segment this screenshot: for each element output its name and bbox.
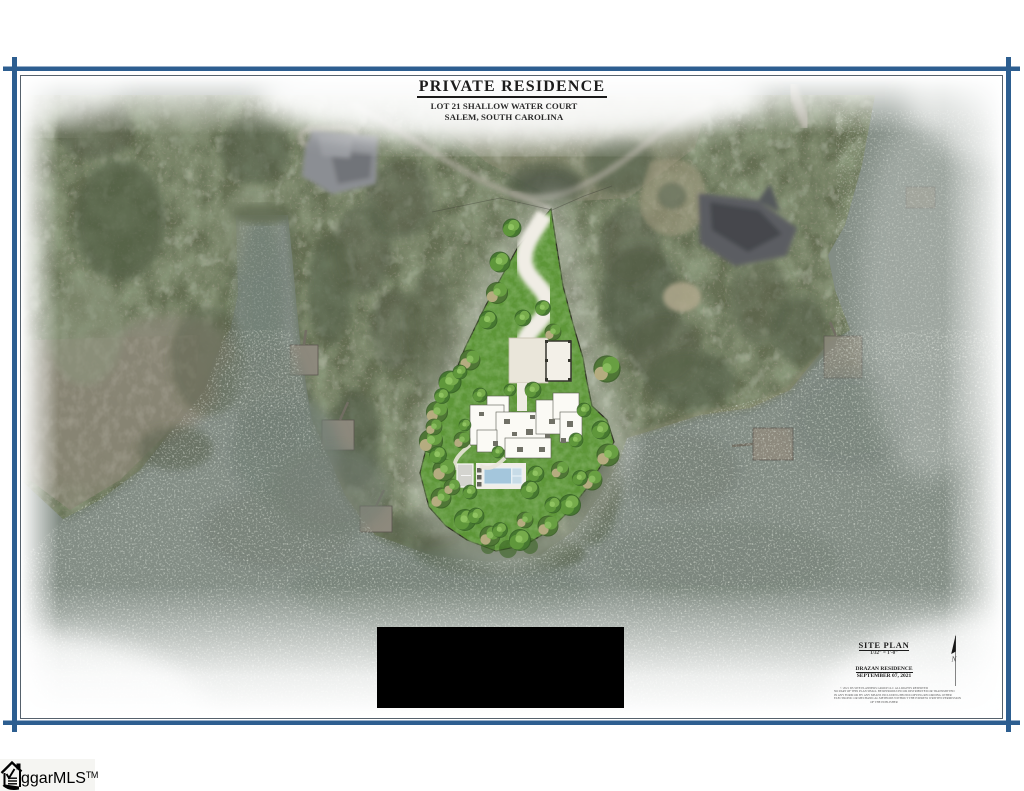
svg-text:N: N xyxy=(951,655,958,664)
